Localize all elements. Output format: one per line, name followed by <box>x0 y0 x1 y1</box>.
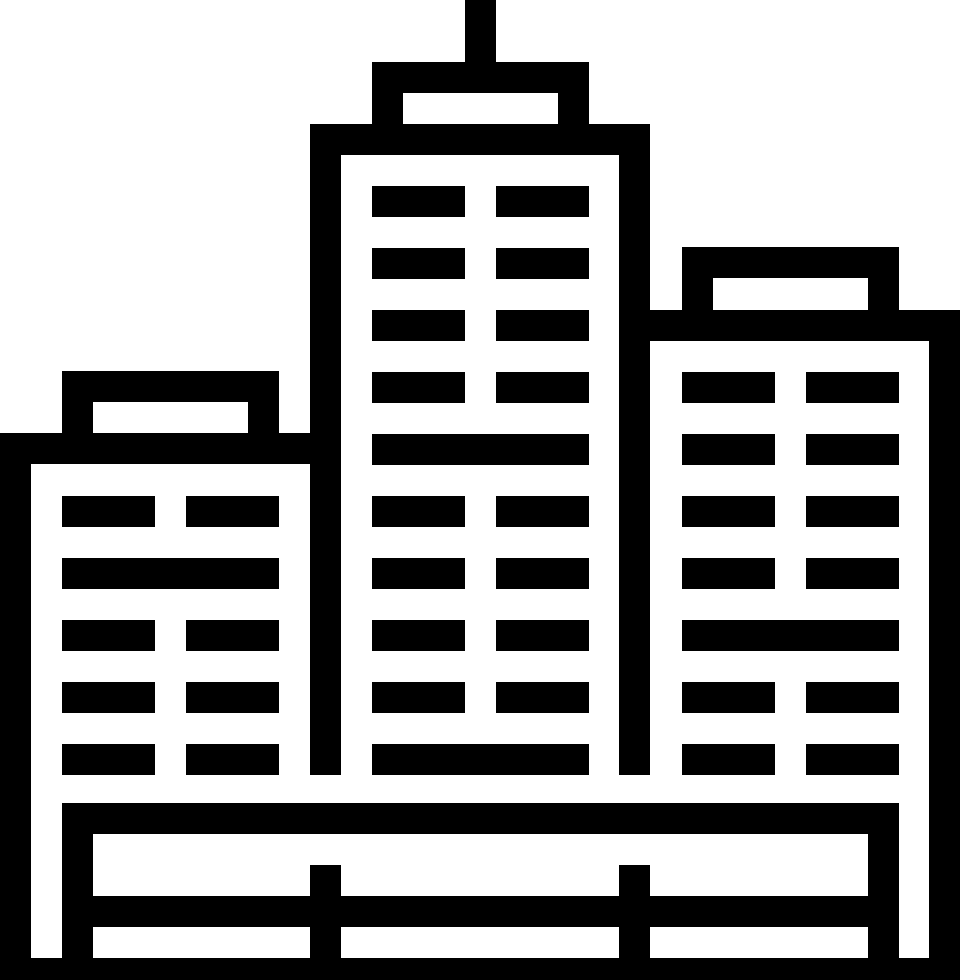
right-wall-outer <box>929 341 960 958</box>
center-window-r8-right <box>496 620 589 651</box>
right-window-r5-wide <box>682 620 899 651</box>
right-cap-pillar-left <box>682 278 713 310</box>
center-window-r1-left <box>372 186 465 217</box>
base-platform <box>62 803 899 834</box>
center-wall-left <box>310 155 341 775</box>
right-window-r7-right <box>806 744 899 775</box>
center-window-r5-wide <box>372 434 589 465</box>
left-wall-outer <box>0 464 31 958</box>
left-cap-pillar-right <box>248 402 279 433</box>
center-window-r7-left <box>372 558 465 589</box>
right-window-r3-right <box>806 496 899 527</box>
center-window-r3-right <box>496 310 589 341</box>
center-window-r3-left <box>372 310 465 341</box>
right-window-r3-left <box>682 496 775 527</box>
right-window-r2-right <box>806 434 899 465</box>
center-cap-pillar-left <box>372 93 403 124</box>
right-window-r6-left <box>682 682 775 713</box>
left-cap-pillar-left <box>62 402 93 433</box>
right-roof-band <box>650 310 960 341</box>
left-window-r4-left <box>62 682 155 713</box>
left-window-r1-left <box>62 496 155 527</box>
center-window-r4-right <box>496 372 589 403</box>
center-window-r10-wide <box>372 744 589 775</box>
center-wall-right <box>619 155 650 775</box>
base-post-right <box>619 865 650 958</box>
center-window-r6-right <box>496 496 589 527</box>
left-window-r5-left <box>62 744 155 775</box>
base-ground <box>0 958 960 980</box>
city-buildings-icon <box>0 0 960 980</box>
center-window-r9-left <box>372 682 465 713</box>
center-window-r9-right <box>496 682 589 713</box>
left-window-r3-right <box>186 620 279 651</box>
right-window-r1-right <box>806 372 899 403</box>
center-window-r6-left <box>372 496 465 527</box>
center-cap-top <box>372 62 589 93</box>
icon-canvas <box>0 0 960 980</box>
center-window-r2-right <box>496 248 589 279</box>
base-post-left <box>310 865 341 958</box>
right-window-r7-left <box>682 744 775 775</box>
right-cap-pillar-right <box>868 278 899 310</box>
left-window-r1-right <box>186 496 279 527</box>
center-window-r4-left <box>372 372 465 403</box>
left-window-r5-right <box>186 744 279 775</box>
center-window-r8-left <box>372 620 465 651</box>
base-rail <box>62 896 899 927</box>
right-window-r1-left <box>682 372 775 403</box>
center-roof-band <box>310 124 650 155</box>
right-cap-top <box>682 247 899 278</box>
left-window-r2-wide <box>62 558 279 589</box>
left-window-r4-right <box>186 682 279 713</box>
center-cap-pillar-right <box>558 93 589 124</box>
right-window-r4-left <box>682 558 775 589</box>
left-roof-band <box>0 433 310 464</box>
left-cap-top <box>62 371 279 402</box>
center-window-r7-right <box>496 558 589 589</box>
center-window-r2-left <box>372 248 465 279</box>
right-window-r2-left <box>682 434 775 465</box>
right-window-r6-right <box>806 682 899 713</box>
center-window-r1-right <box>496 186 589 217</box>
right-window-r4-right <box>806 558 899 589</box>
left-window-r3-left <box>62 620 155 651</box>
